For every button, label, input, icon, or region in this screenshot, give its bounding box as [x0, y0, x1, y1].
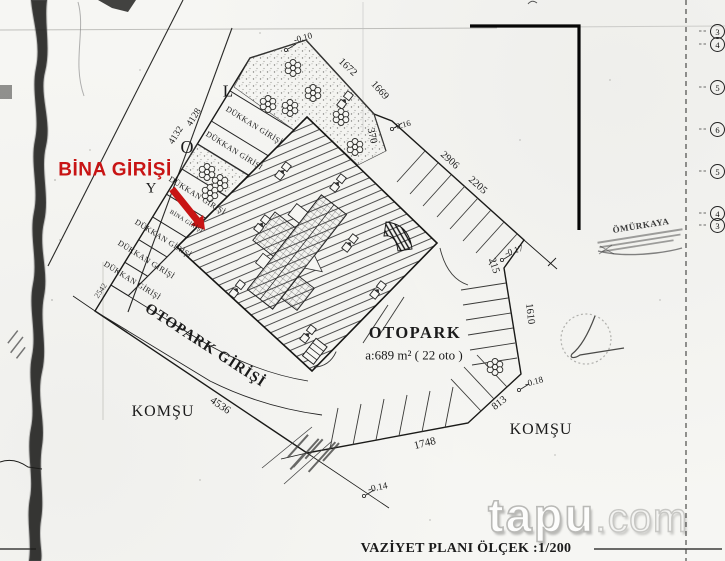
- road-letter-l: L: [223, 83, 233, 100]
- plan-caption: VAZİYET PLANI ÖLÇEK :1/200: [361, 542, 572, 556]
- bina-girisi-annotation: BİNA GİRİŞİ: [58, 161, 172, 180]
- komsu-right: KOMŞU: [510, 422, 573, 438]
- reference-line: [594, 0, 722, 561]
- torn-paper-edge: [0, 0, 136, 561]
- ref-circle-2: 4: [710, 37, 725, 52]
- site-plan-drawing: [0, 0, 725, 561]
- signature: [571, 316, 624, 358]
- adjacent-structure: [470, 26, 579, 230]
- dim-1610: 1610: [523, 303, 536, 325]
- ref-circle-7: 3: [710, 218, 725, 233]
- ref-circle-3: 5: [710, 80, 725, 95]
- dim-370: 370: [364, 127, 378, 145]
- otopark-area: a:689 m² ( 22 oto ): [365, 349, 462, 362]
- komsu-left: KOMŞU: [132, 404, 195, 420]
- stamp-text-lines: [597, 228, 682, 252]
- ref-circle-4: 6: [710, 122, 725, 137]
- road-letter-o: O: [181, 138, 194, 156]
- otopark-title: OTOPARK: [369, 325, 461, 342]
- road-letter-y: Y: [146, 182, 157, 197]
- round-stamp: [561, 314, 611, 364]
- ref-circle-5: 5: [710, 164, 725, 179]
- site-plan-scan: tapu.com: [0, 0, 725, 561]
